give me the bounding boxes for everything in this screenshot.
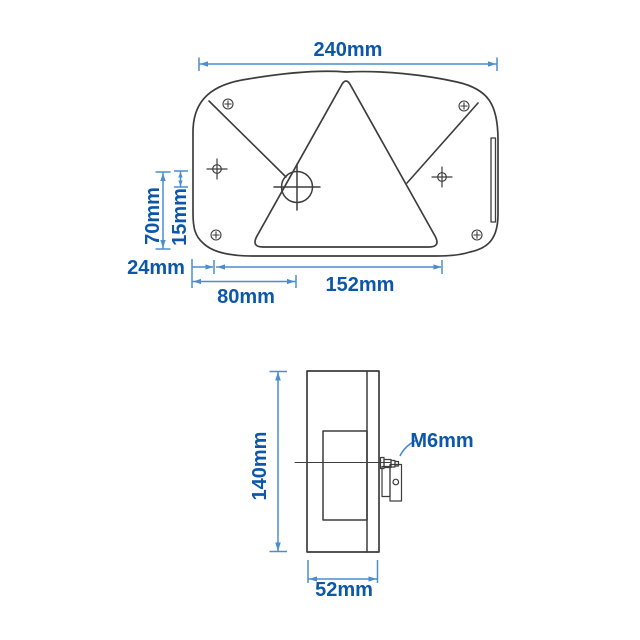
mounting-hole-crosshair-right bbox=[432, 167, 452, 187]
front-view bbox=[193, 71, 498, 256]
dim-label-depth-52mm: 52mm bbox=[294, 578, 394, 602]
mounting-bolt bbox=[381, 458, 402, 502]
dim-label-offset-15mm: 15mm bbox=[168, 167, 192, 267]
screw-icon bbox=[223, 99, 233, 109]
screw-icon bbox=[459, 101, 469, 111]
dim-label-width-240mm: 240mm bbox=[298, 38, 398, 62]
dim-label-hole-spacing-152mm: 152mm bbox=[310, 273, 410, 297]
dim-label-edge-to-hole-24mm: 24mm bbox=[106, 256, 206, 280]
side-marker-strip bbox=[491, 138, 496, 222]
reflector-triangle bbox=[255, 81, 437, 247]
bolt-hole bbox=[393, 479, 399, 485]
dimension-linework bbox=[156, 58, 498, 584]
bolt-bracket bbox=[382, 467, 390, 497]
bolt-tip bbox=[395, 462, 399, 467]
lamp-outline bbox=[193, 71, 498, 256]
lens-divider-left bbox=[209, 101, 286, 177]
side-body-outline bbox=[307, 371, 379, 552]
dim-label-edge-to-center-80mm: 80mm bbox=[196, 285, 296, 309]
dim-140mm-lines bbox=[270, 372, 288, 552]
dim-label-side-height-140mm: 140mm bbox=[248, 416, 272, 516]
screw-icon bbox=[472, 230, 482, 240]
technical-drawing-canvas: 240mm 70mm 15mm 24mm 80mm 152mm 140mm 52… bbox=[0, 0, 640, 640]
drawing-linework bbox=[0, 0, 640, 640]
bolt-plate bbox=[390, 465, 402, 502]
dim-label-height-70mm: 70mm bbox=[141, 166, 165, 266]
side-view bbox=[295, 371, 402, 552]
screw-icon bbox=[211, 230, 221, 240]
mounting-hole-crosshair-left bbox=[207, 159, 227, 179]
inner-housing-rect bbox=[323, 431, 367, 520]
dim-label-bolt-m6mm: M6mm bbox=[392, 429, 492, 453]
